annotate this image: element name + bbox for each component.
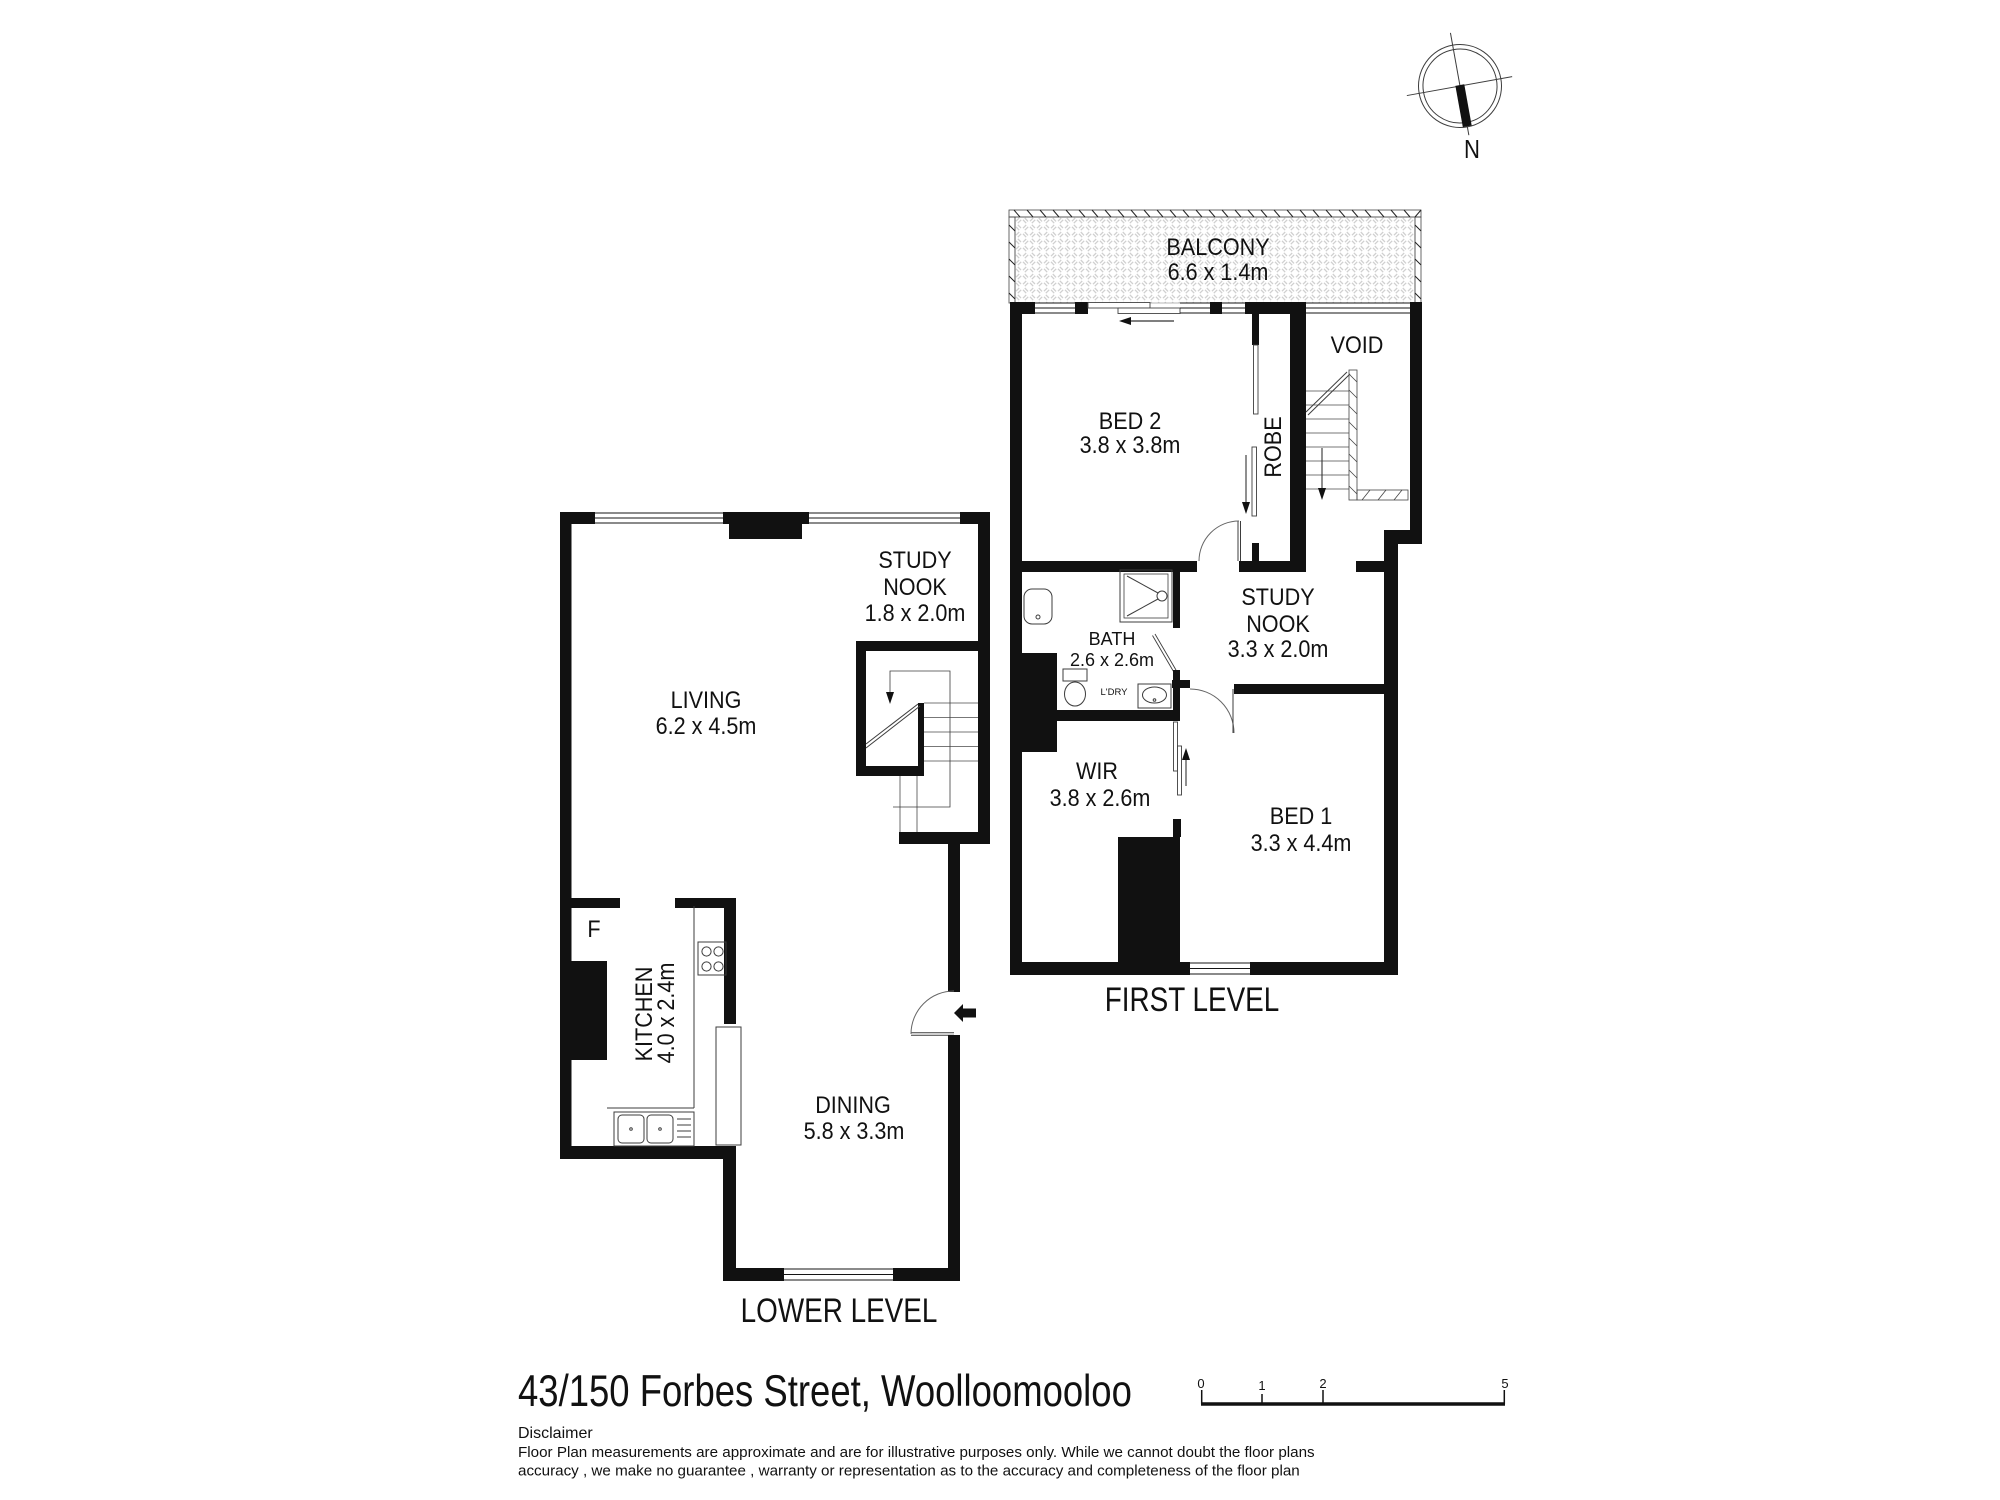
svg-text:LIVING: LIVING [671, 686, 742, 713]
svg-text:NOOK: NOOK [883, 573, 947, 600]
svg-text:DINING: DINING [815, 1091, 891, 1118]
svg-text:WIR: WIR [1076, 757, 1118, 784]
svg-text:0: 0 [1197, 1376, 1204, 1391]
svg-text:1: 1 [1258, 1378, 1265, 1393]
svg-text:N: N [1464, 135, 1480, 164]
svg-text:1.8 x 2.0m: 1.8 x 2.0m [865, 599, 966, 626]
svg-text:BED 1: BED 1 [1270, 802, 1332, 829]
svg-text:4.0 x 2.4m: 4.0 x 2.4m [652, 963, 679, 1064]
svg-text:accuracy , we make no guarante: accuracy , we make no guarantee , warran… [518, 1463, 1300, 1480]
svg-text:3.3 x 2.0m: 3.3 x 2.0m [1228, 635, 1329, 662]
svg-text:2: 2 [1319, 1376, 1326, 1391]
svg-text:Disclaimer: Disclaimer [518, 1425, 593, 1442]
svg-text:NOOK: NOOK [1246, 610, 1310, 637]
svg-text:ROBE: ROBE [1259, 416, 1286, 477]
svg-text:6.2 x 4.5m: 6.2 x 4.5m [656, 712, 757, 739]
svg-text:3.3 x 4.4m: 3.3 x 4.4m [1251, 829, 1352, 856]
svg-text:STUDY: STUDY [878, 546, 951, 573]
svg-text:2.6 x 2.6m: 2.6 x 2.6m [1070, 650, 1154, 670]
svg-text:43/150 Forbes Street, Woolloom: 43/150 Forbes Street, Woolloomooloo [518, 1366, 1132, 1416]
svg-text:5: 5 [1501, 1376, 1508, 1391]
svg-text:BALCONY: BALCONY [1166, 233, 1269, 260]
svg-text:VOID: VOID [1331, 331, 1384, 358]
svg-text:6.6 x 1.4m: 6.6 x 1.4m [1168, 258, 1269, 285]
svg-text:BATH: BATH [1089, 629, 1136, 649]
svg-text:L'DRY: L'DRY [1101, 687, 1129, 698]
svg-text:3.8 x 3.8m: 3.8 x 3.8m [1080, 431, 1181, 458]
svg-text:STUDY: STUDY [1241, 583, 1314, 610]
svg-text:3.8 x 2.6m: 3.8 x 2.6m [1050, 784, 1151, 811]
svg-text:LOWER LEVEL: LOWER LEVEL [741, 1291, 938, 1329]
svg-text:F: F [587, 915, 600, 942]
svg-text:5.8 x 3.3m: 5.8 x 3.3m [804, 1117, 905, 1144]
svg-text:FIRST LEVEL: FIRST LEVEL [1105, 980, 1280, 1018]
svg-text:Floor Plan measurements are ap: Floor Plan measurements are approximate … [518, 1444, 1315, 1461]
